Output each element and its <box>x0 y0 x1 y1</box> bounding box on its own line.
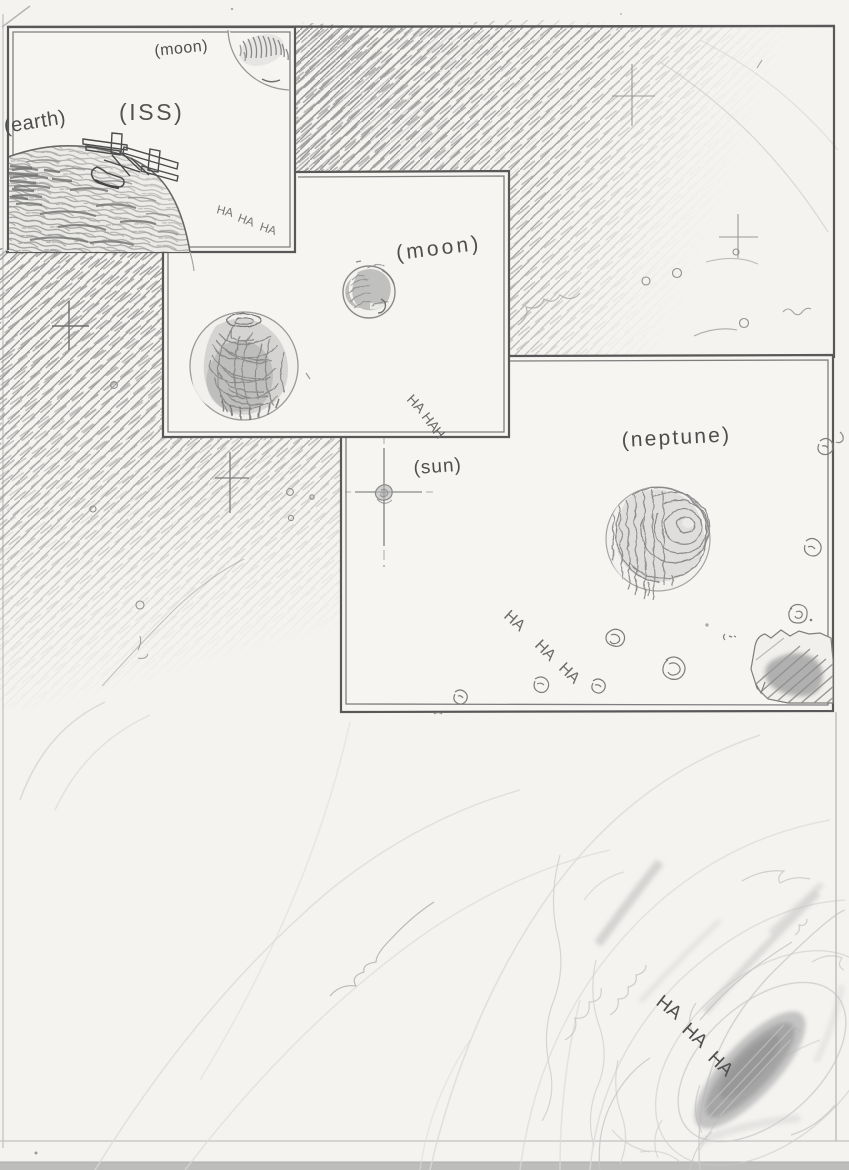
svg-text:(sun): (sun) <box>413 455 463 479</box>
svg-text:(ISS): (ISS) <box>119 99 184 125</box>
